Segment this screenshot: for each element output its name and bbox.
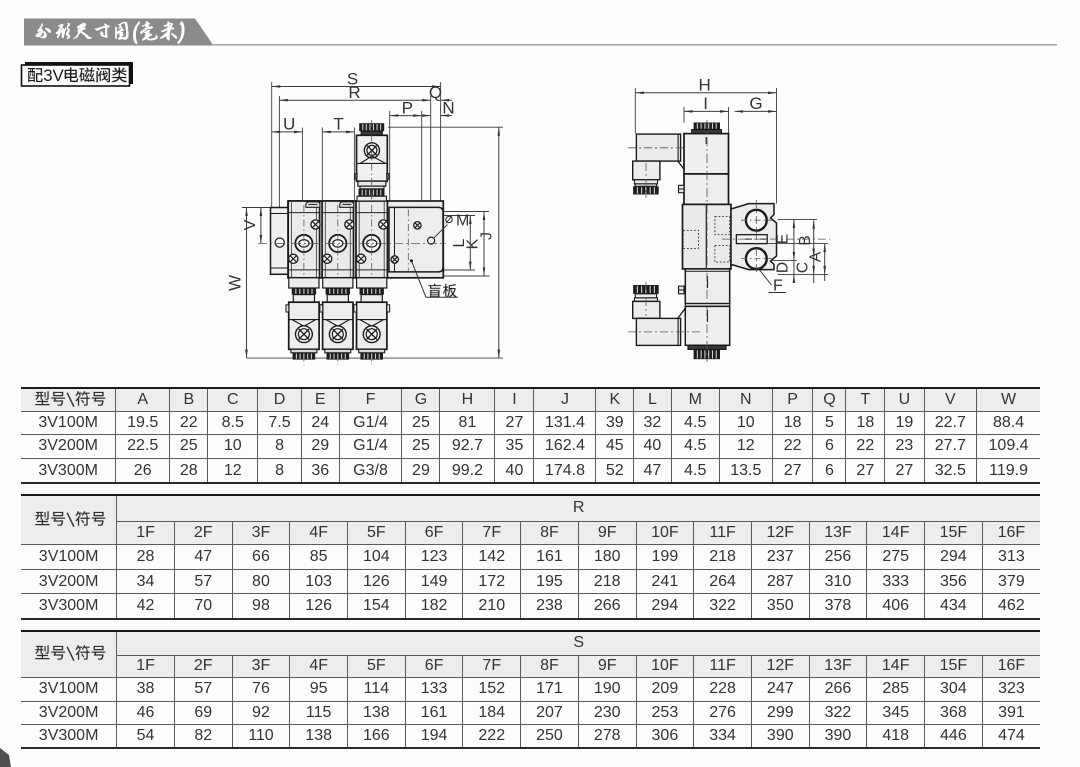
svg-text:P: P [402,98,413,117]
svg-text:U: U [283,115,295,134]
svg-text:W: W [226,275,245,291]
svg-text:3V: 3V [43,66,64,85]
svg-text:R: R [348,83,360,102]
svg-text:A: A [808,251,825,262]
svg-text:M: M [456,213,469,230]
svg-text:C: C [795,262,812,273]
svg-text:H: H [699,76,711,95]
svg-text:J: J [478,232,495,240]
svg-text:D: D [775,262,792,273]
svg-text:I: I [703,94,708,113]
svg-text:V: V [242,219,259,230]
svg-text:T: T [333,115,343,134]
svg-text:B: B [797,235,814,245]
svg-text:F: F [773,278,783,295]
svg-text:N: N [442,98,454,117]
svg-text:S: S [347,69,358,88]
svg-text:Q: Q [429,83,442,102]
svg-text:L: L [451,238,468,247]
svg-text:E: E [775,234,792,244]
svg-text:G: G [749,94,762,113]
svg-text:K: K [465,238,482,249]
